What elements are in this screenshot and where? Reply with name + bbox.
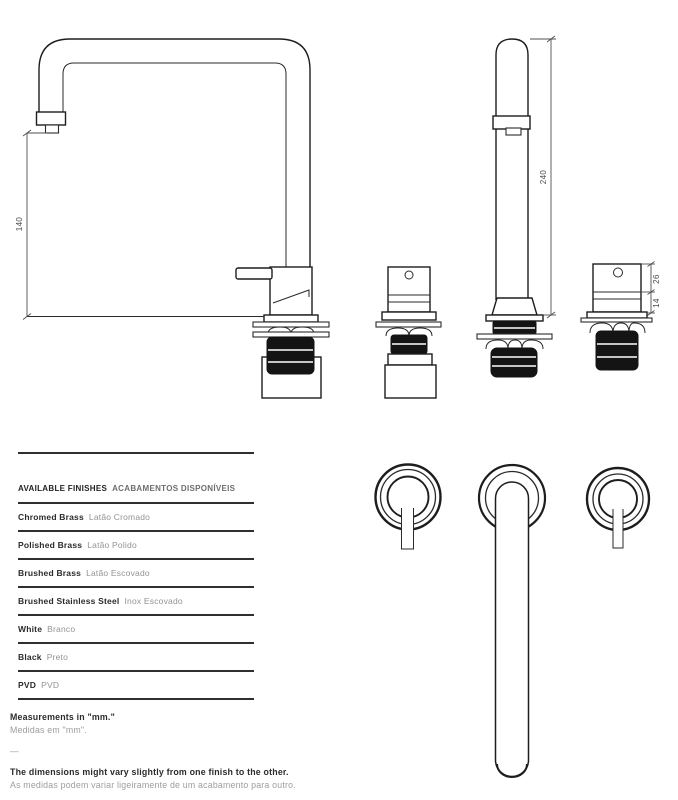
finish-row-pvd: PVD PVD <box>18 672 254 698</box>
dimension-26-14: 26 14 <box>641 262 661 316</box>
table-rule <box>18 698 254 700</box>
dimension-140: 140 <box>15 130 47 320</box>
finish-row-chromed-brass: Chromed Brass Latão Cromado <box>18 504 254 530</box>
faucet-side-view-drawing: 140 <box>15 39 329 398</box>
dimension-240: 240 <box>530 36 556 318</box>
finish-name-en: Brushed Stainless Steel <box>18 596 119 606</box>
finish-name-en: Brushed Brass <box>18 568 81 578</box>
top-view-spout <box>479 465 545 777</box>
table-header: AVAILABLE FINISHES ACABAMENTOS DISPONÍVE… <box>18 454 254 502</box>
notes-divider: — <box>10 745 340 758</box>
finish-name-pt: Latão Escovado <box>86 568 150 578</box>
dim-label-26: 26 <box>652 274 661 284</box>
finish-row-polished-brass: Polished Brass Latão Polido <box>18 532 254 558</box>
valve-front-view-right: 26 14 <box>581 262 661 371</box>
units-note-pt: Medidas em "mm". <box>10 724 340 737</box>
finish-row-brushed-brass: Brushed Brass Latão Escovado <box>18 560 254 586</box>
top-view-left-handle <box>376 465 441 550</box>
valve-front-view-left <box>376 267 441 398</box>
finish-name-pt: Branco <box>47 624 75 634</box>
finish-name-pt: PVD <box>41 680 59 690</box>
spec-sheet-page: 140 <box>0 0 678 800</box>
table-header-en: AVAILABLE FINISHES <box>18 484 107 493</box>
finish-row-brushed-stainless-steel: Brushed Stainless Steel Inox Escovado <box>18 588 254 614</box>
dim-label-240: 240 <box>539 170 548 185</box>
finish-name-en: Polished Brass <box>18 540 82 550</box>
available-finishes-table: AVAILABLE FINISHES ACABAMENTOS DISPONÍVE… <box>18 452 254 700</box>
finish-name-pt: Latão Polido <box>87 540 137 550</box>
top-view-right-handle <box>587 468 649 548</box>
dim-label-140: 140 <box>15 217 24 232</box>
finish-name-en: Black <box>18 652 42 662</box>
tolerance-note-pt: As medidas podem variar ligeiramente de … <box>10 779 340 792</box>
units-note-en: Measurements in "mm." <box>10 711 340 724</box>
finish-name-pt: Latão Cromado <box>89 512 150 522</box>
tolerance-note-en: The dimensions might vary slightly from … <box>10 766 340 779</box>
finish-row-black: Black Preto <box>18 644 254 670</box>
dim-label-14: 14 <box>652 298 661 308</box>
table-header-pt: ACABAMENTOS DISPONÍVEIS <box>112 484 235 493</box>
finish-name-pt: Inox Escovado <box>124 596 182 606</box>
footer-notes: Measurements in "mm." Medidas em "mm". —… <box>10 711 340 792</box>
finish-name-en: White <box>18 624 42 634</box>
faucet-front-view-drawing: 240 <box>477 36 556 377</box>
finish-name-pt: Preto <box>47 652 68 662</box>
finish-name-en: Chromed Brass <box>18 512 84 522</box>
finish-row-white: White Branco <box>18 616 254 642</box>
finish-name-en: PVD <box>18 680 36 690</box>
